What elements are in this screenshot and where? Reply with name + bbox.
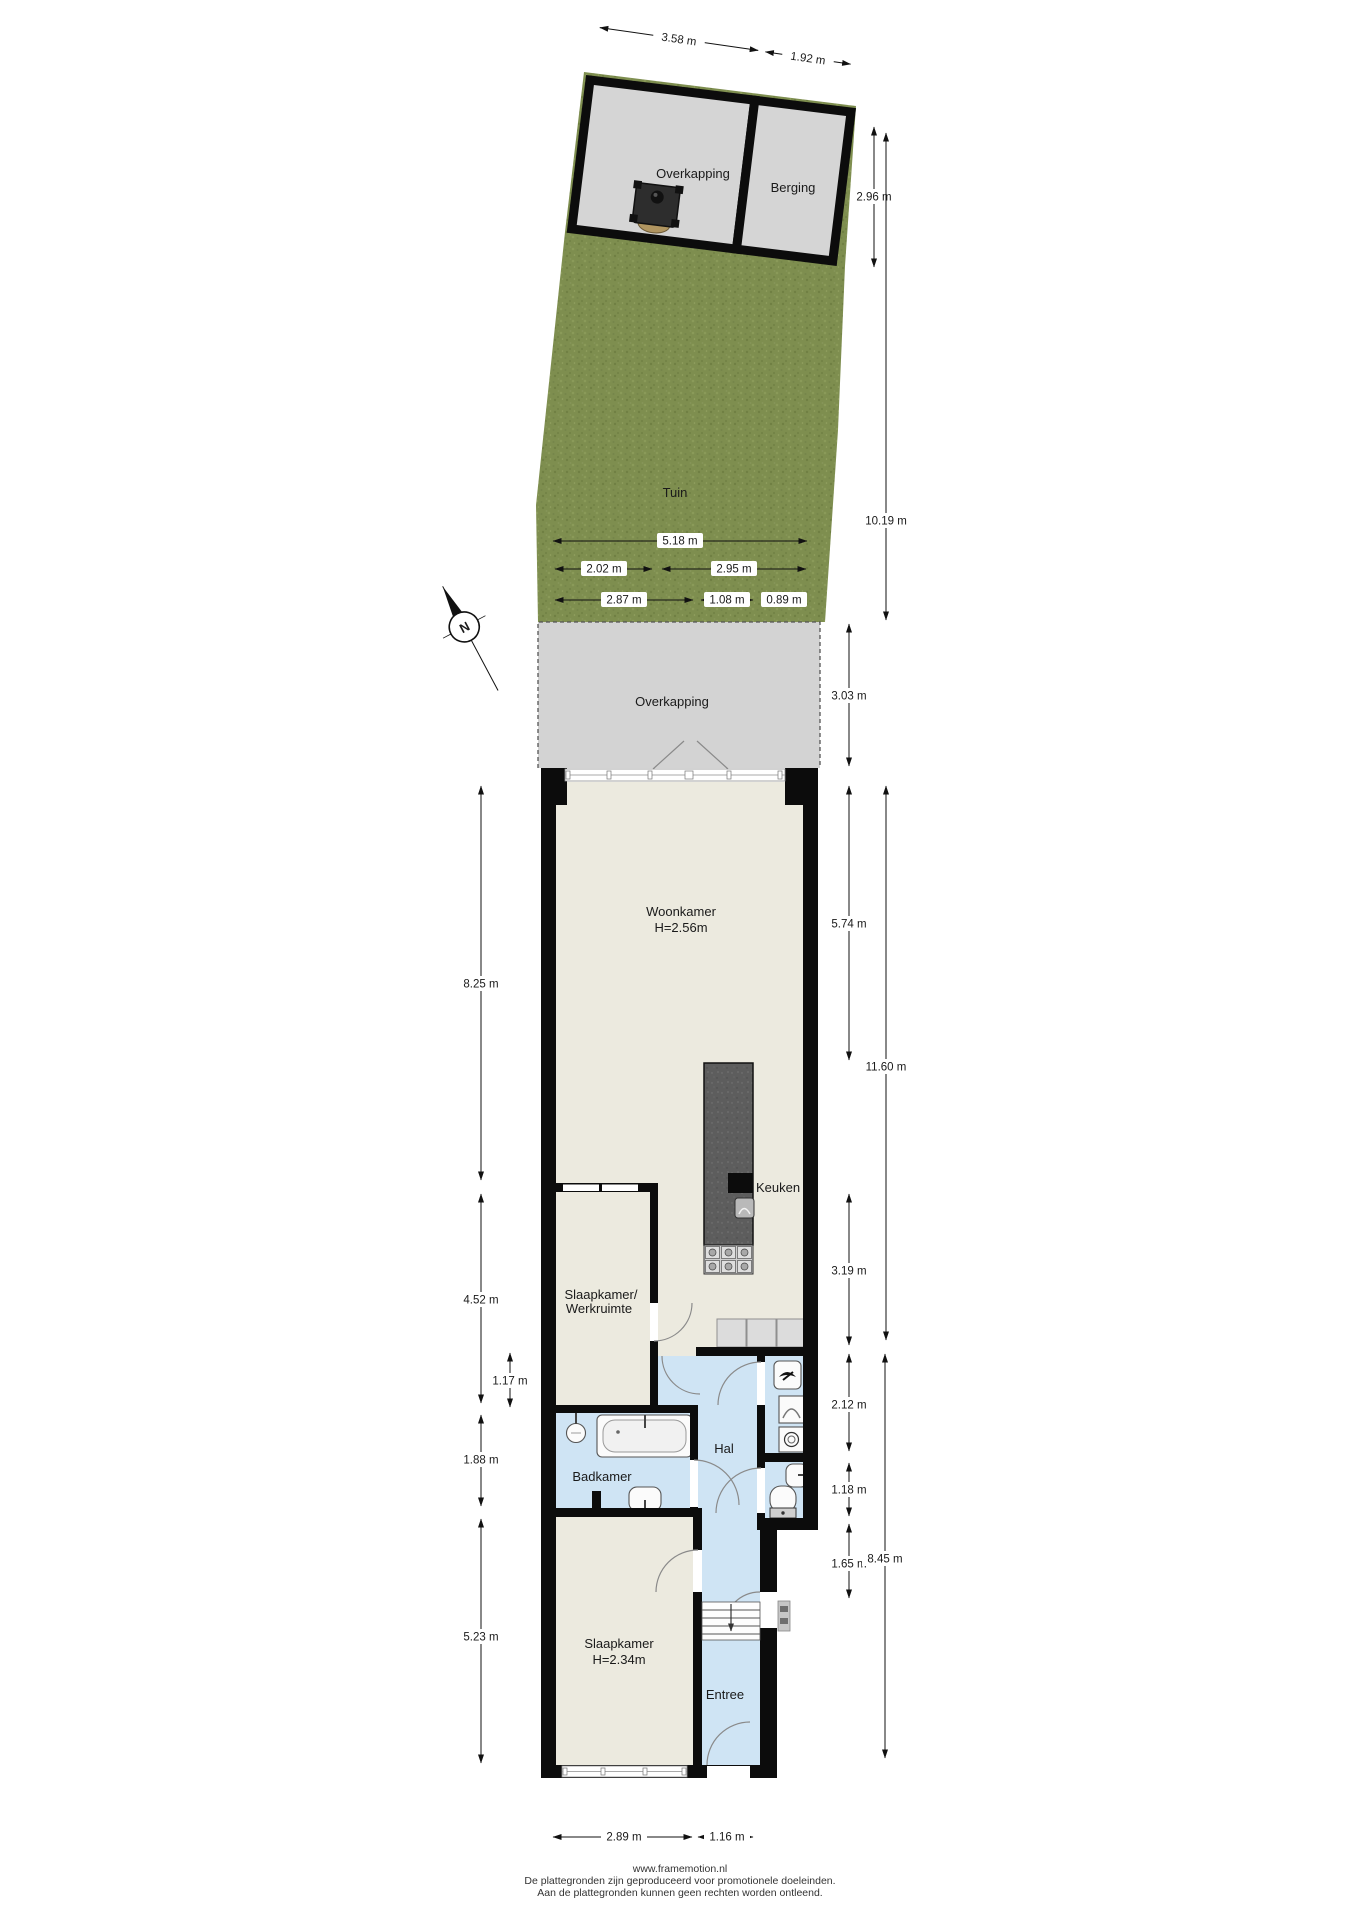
dim-shed-width: 1.92 m xyxy=(764,44,851,72)
svg-text:1.65 m: 1.65 m xyxy=(831,1559,866,1571)
vanity-basin xyxy=(629,1487,661,1511)
svg-text:1.08 m: 1.08 m xyxy=(709,595,744,607)
living-room-label: Woonkamer xyxy=(646,904,717,919)
svg-text:2.02 m: 2.02 m xyxy=(586,564,621,576)
dim-shed-depth: 2.96 m xyxy=(851,127,897,267)
svg-text:3.03 m: 3.03 m xyxy=(831,691,866,703)
dim-carport-top-width: 3.58 m xyxy=(599,20,760,59)
island-black-counter xyxy=(728,1173,753,1193)
doormat xyxy=(778,1601,790,1631)
staircase xyxy=(702,1602,760,1640)
dim-bedroom-length: 5.23 m xyxy=(458,1519,504,1763)
dim-house-lower-length: 8.45 m xyxy=(862,1354,908,1758)
compass-north-icon: N xyxy=(421,575,519,702)
dim-living-length-left: 8.25 m xyxy=(458,786,504,1180)
dim-bedroom-width: 2.89 m xyxy=(553,1829,692,1844)
boiler-icon xyxy=(779,1396,804,1423)
dim-house-upper-length: 11.60 m xyxy=(859,786,913,1340)
toilet-icon xyxy=(770,1486,796,1518)
svg-text:8.45 m: 8.45 m xyxy=(867,1554,902,1566)
bathroom-wall-stub xyxy=(592,1491,601,1508)
dim-entry-width: 1.16 m xyxy=(698,1829,753,1844)
kitchen-label: Keuken xyxy=(756,1180,800,1195)
dim-living-length-right: 5.74 m xyxy=(826,786,872,1060)
svg-text:2.95 m: 2.95 m xyxy=(716,564,751,576)
kitchen-counter-row xyxy=(717,1319,804,1347)
svg-text:2.89 m: 2.89 m xyxy=(606,1832,641,1844)
svg-text:11.60 m: 11.60 m xyxy=(866,1062,907,1074)
dim-garden-lower-mid: 1.08 m xyxy=(701,592,753,607)
washing-machine-icon xyxy=(779,1427,804,1452)
office-label-line1: Slaapkamer/ xyxy=(565,1287,638,1302)
svg-text:5.23 m: 5.23 m xyxy=(463,1632,498,1644)
dim-garden-length: 10.19 m xyxy=(859,133,913,620)
svg-text:3.19 m: 3.19 m xyxy=(831,1266,866,1278)
dim-utility-side: 2.12 m xyxy=(826,1354,872,1451)
svg-text:1.88 m: 1.88 m xyxy=(463,1455,498,1467)
dim-garden-lower-right: 0.89 m xyxy=(761,592,807,607)
kitchen-island xyxy=(704,1063,754,1245)
bedroom-height: H=2.34m xyxy=(592,1652,645,1667)
entry-label: Entree xyxy=(706,1687,744,1702)
hall-label: Hal xyxy=(714,1441,734,1456)
bathtub xyxy=(597,1415,692,1457)
dim-office-length: 4.52 m xyxy=(458,1194,504,1403)
footer-url: www.framemotion.nl xyxy=(632,1863,728,1875)
dim-office-nook: 1.17 m xyxy=(487,1353,533,1407)
svg-text:1.16 m: 1.16 m xyxy=(709,1832,744,1844)
carport-top-label: Overkapping xyxy=(656,166,730,181)
svg-text:1.17 m: 1.17 m xyxy=(492,1376,527,1388)
dim-kitchen-side: 3.19 m xyxy=(826,1194,872,1345)
svg-text:2.12 m: 2.12 m xyxy=(831,1400,866,1412)
svg-text:10.19 m: 10.19 m xyxy=(865,516,907,528)
bathroom-label: Badkamer xyxy=(572,1469,632,1484)
svg-text:1.18 m: 1.18 m xyxy=(831,1485,866,1497)
living-room-height: H=2.56m xyxy=(654,920,707,935)
office-label-line2: Werkruimte xyxy=(566,1301,632,1316)
footer-disclaimer-2: Aan de plattegronden kunnen geen rechten… xyxy=(537,1887,822,1899)
dim-bath-length: 1.88 m xyxy=(458,1415,504,1506)
svg-text:2.87 m: 2.87 m xyxy=(606,595,641,607)
footer-disclaimer-1: De plattegronden zijn geproduceerd voor … xyxy=(524,1875,835,1887)
svg-text:4.52 m: 4.52 m xyxy=(463,1295,498,1307)
ventilation-unit-icon xyxy=(774,1361,801,1389)
svg-text:5.74 m: 5.74 m xyxy=(831,919,866,931)
shed-label: Berging xyxy=(771,180,816,195)
stove xyxy=(704,1245,753,1274)
svg-text:8.25 m: 8.25 m xyxy=(463,979,498,991)
svg-text:0.89 m: 0.89 m xyxy=(766,595,801,607)
bedroom-label: Slaapkamer xyxy=(584,1636,654,1651)
dim-carport-lower-depth: 3.03 m xyxy=(826,624,872,766)
garden-label: Tuin xyxy=(663,485,688,500)
svg-text:5.18 m: 5.18 m xyxy=(662,536,697,548)
carport-lower-label: Overkapping xyxy=(635,694,709,709)
dim-wc-side: 1.18 m xyxy=(826,1463,872,1516)
floorplan-canvas: Tuin Overkapping Berging Overkapping xyxy=(0,0,1358,1920)
